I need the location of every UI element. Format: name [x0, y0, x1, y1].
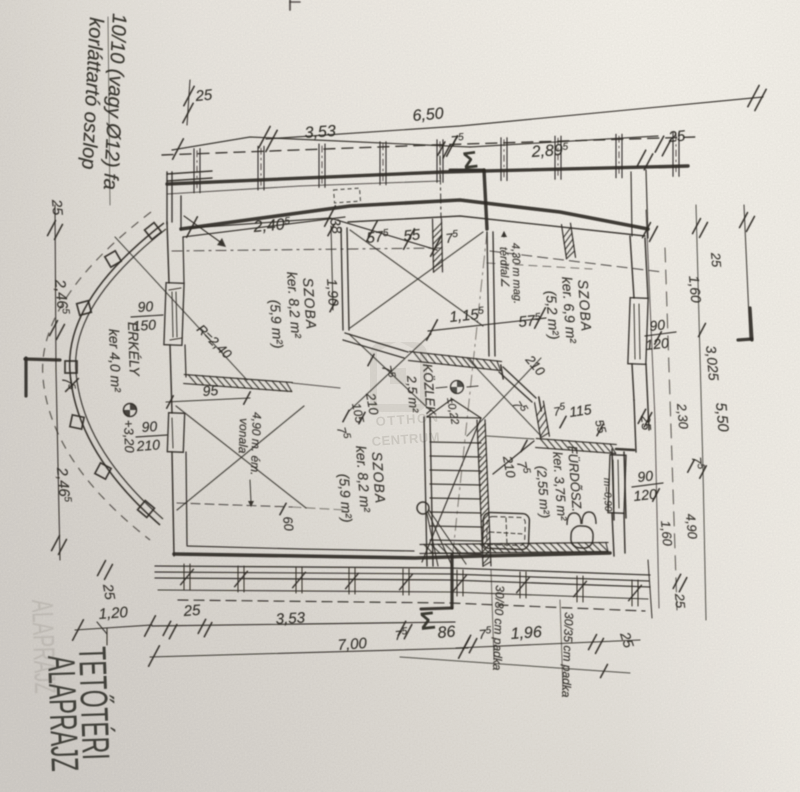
svg-text:3,53: 3,53 [304, 123, 336, 142]
svg-text:(5,2 m²): (5,2 m²) [543, 290, 562, 340]
svg-text:95: 95 [202, 382, 219, 399]
svg-text:7,00: 7,00 [337, 635, 368, 654]
svg-text:1,90: 1,90 [324, 278, 342, 307]
svg-text:120: 120 [633, 486, 658, 504]
svg-text:1,60: 1,60 [658, 520, 675, 547]
svg-text:90: 90 [137, 298, 154, 315]
svg-text:25: 25 [194, 87, 214, 106]
svg-text:(5,9 m²): (5,9 m²) [267, 299, 286, 349]
svg-text:2,30: 2,30 [674, 402, 691, 430]
svg-text:3,53: 3,53 [275, 609, 306, 628]
svg-text:120: 120 [645, 335, 670, 353]
svg-text:4,90: 4,90 [683, 513, 700, 540]
svg-text:150: 150 [132, 316, 157, 334]
svg-text:25: 25 [49, 198, 66, 216]
svg-text:3,025: 3,025 [703, 345, 722, 382]
svg-text:ker 4,0 m²: ker 4,0 m² [106, 329, 124, 394]
svg-text:5,50: 5,50 [712, 402, 732, 433]
svg-text:1,96: 1,96 [510, 624, 542, 643]
svg-text:vonala: vonala [236, 418, 251, 454]
svg-text:30/35 cm padka: 30/35 cm padka [559, 612, 576, 698]
svg-text:90: 90 [141, 418, 158, 435]
svg-text:6,50: 6,50 [412, 105, 445, 125]
svg-text:25: 25 [667, 128, 687, 147]
svg-text:1,60: 1,60 [686, 275, 704, 304]
svg-text:ALAPRAJZ: ALAPRAJZ [25, 599, 62, 694]
svg-text:4,30 m mag.: 4,30 m mag. [509, 243, 523, 305]
svg-text:210: 210 [135, 436, 161, 454]
svg-text:60: 60 [280, 516, 297, 533]
svg-text:55: 55 [403, 226, 422, 245]
svg-text:115: 115 [568, 401, 593, 420]
svg-text:25: 25 [100, 582, 119, 601]
svg-text:25: 25 [638, 414, 654, 431]
svg-text:térdfal∠: térdfal∠ [497, 247, 510, 288]
svg-text:30/80 cm padka: 30/80 cm padka [490, 585, 507, 671]
svg-text:90: 90 [637, 467, 654, 485]
svg-text:86: 86 [437, 623, 456, 641]
svg-text:1,20: 1,20 [98, 604, 129, 623]
svg-text:(5,9 m²): (5,9 m²) [336, 473, 355, 523]
svg-text:+3,20: +3,20 [121, 420, 137, 454]
svg-text:m=0,90: m=0,90 [601, 478, 613, 512]
svg-text:2,5 m²: 2,5 m² [404, 374, 422, 413]
svg-text:Σ: Σ [419, 607, 437, 636]
svg-text:25: 25 [672, 592, 688, 609]
svg-text:25: 25 [708, 251, 724, 268]
svg-text:25: 25 [182, 602, 201, 620]
